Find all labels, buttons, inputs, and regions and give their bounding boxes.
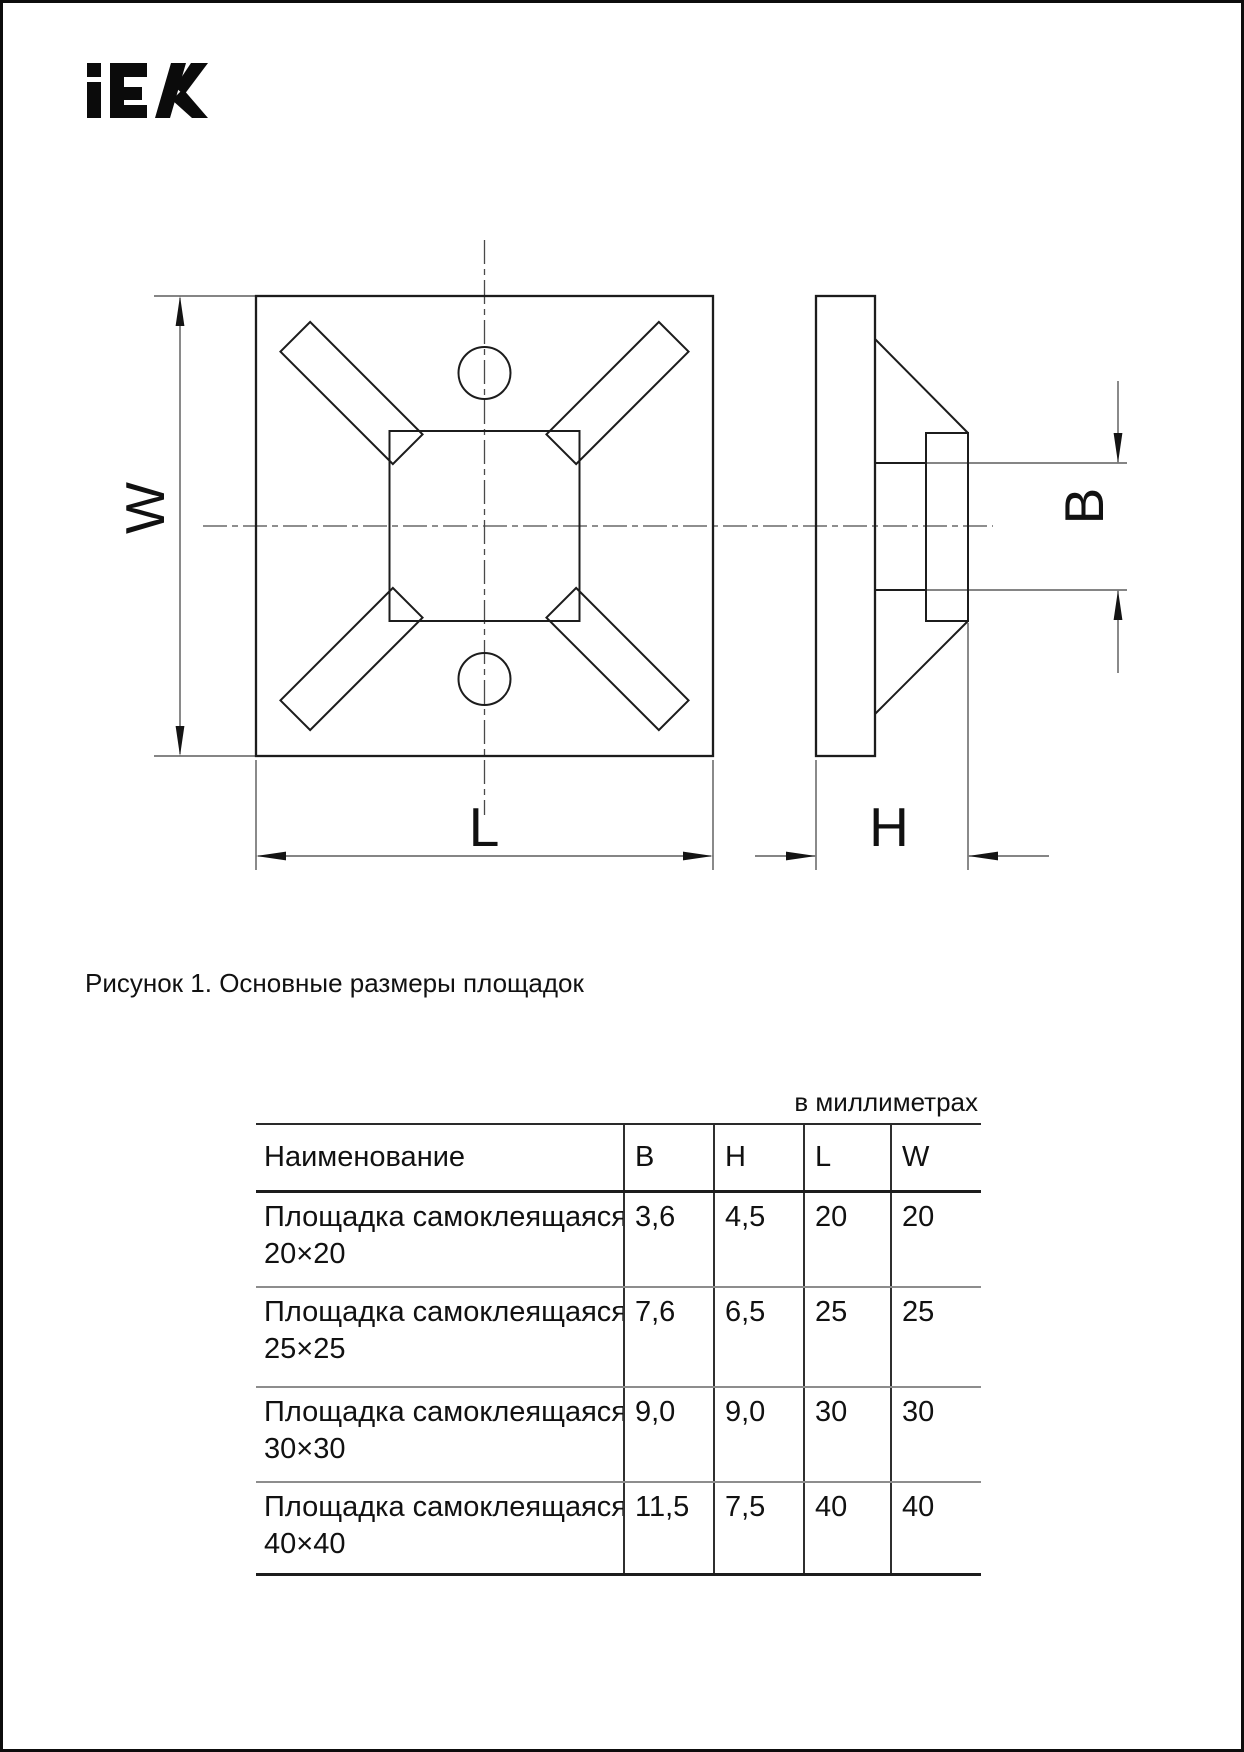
table-cell-h: 7,5	[713, 1483, 803, 1573]
column-header-h: H	[713, 1125, 803, 1190]
units-note: в миллиметрах	[600, 1087, 978, 1118]
column-header-b: B	[623, 1125, 713, 1190]
dimension-arrowheads	[176, 296, 1123, 860]
table-row: Площадка самоклеящаяся 40×40 11,5 7,5 40…	[256, 1481, 981, 1573]
product-name-line2: 40×40	[264, 1526, 617, 1563]
dimensions-table: Наименование B H L W Площадка самоклеяща…	[256, 1123, 981, 1576]
table-cell-w: 25	[890, 1288, 981, 1386]
table-cell-name: Площадка самоклеящаяся 25×25	[256, 1288, 623, 1386]
table-cell-w: 30	[890, 1388, 981, 1481]
column-header-name: Наименование	[256, 1125, 623, 1190]
product-name-line2: 20×20	[264, 1236, 617, 1273]
table-row: Площадка самоклеящаяся 25×25 7,6 6,5 25 …	[256, 1286, 981, 1386]
product-name-line1: Площадка самоклеящаяся	[264, 1489, 617, 1526]
table-cell-l: 25	[803, 1288, 890, 1386]
boss-lip-profile	[926, 433, 968, 621]
table-cell-h: 6,5	[713, 1288, 803, 1386]
dim-label-l: L	[469, 796, 500, 858]
table-cell-h: 4,5	[713, 1193, 803, 1286]
table-row: Площадка самоклеящаяся 20×20 3,6 4,5 20 …	[256, 1193, 981, 1286]
table-cell-l: 40	[803, 1483, 890, 1573]
product-name-line1: Площадка самоклеящаяся	[264, 1199, 617, 1236]
table-cell-b: 9,0	[623, 1388, 713, 1481]
table-cell-name: Площадка самоклеящаяся 20×20	[256, 1193, 623, 1286]
table-cell-b: 11,5	[623, 1483, 713, 1573]
table-cell-b: 7,6	[623, 1288, 713, 1386]
table-cell-name: Площадка самоклеящаяся 30×30	[256, 1388, 623, 1481]
dim-label-b: B	[1053, 488, 1115, 525]
dim-label-w: W	[114, 482, 176, 534]
table-cell-l: 30	[803, 1388, 890, 1481]
dimension-lines	[154, 296, 1127, 870]
table-cell-h: 9,0	[713, 1388, 803, 1481]
table-cell-b: 3,6	[623, 1193, 713, 1286]
table-cell-w: 40	[890, 1483, 981, 1573]
table-row: Площадка самоклеящаяся 30×30 9,0 9,0 30 …	[256, 1386, 981, 1481]
datasheet-page: W L H B Рисунок 1. Основные размеры площ…	[0, 0, 1244, 1752]
dim-label-h: H	[869, 796, 909, 858]
table-cell-w: 20	[890, 1193, 981, 1286]
column-header-l: L	[803, 1125, 890, 1190]
table-cell-name: Площадка самоклеящаяся 40×40	[256, 1483, 623, 1573]
column-header-w: W	[890, 1125, 981, 1190]
figure-caption: Рисунок 1. Основные размеры площадок	[85, 966, 584, 1000]
product-name-line1: Площадка самоклеящаяся	[264, 1394, 617, 1431]
product-name-line1: Площадка самоклеящаяся	[264, 1294, 617, 1331]
table-cell-l: 20	[803, 1193, 890, 1286]
product-name-line2: 25×25	[264, 1331, 617, 1368]
table-header-row: Наименование B H L W	[256, 1125, 981, 1193]
product-name-line2: 30×30	[264, 1431, 617, 1468]
